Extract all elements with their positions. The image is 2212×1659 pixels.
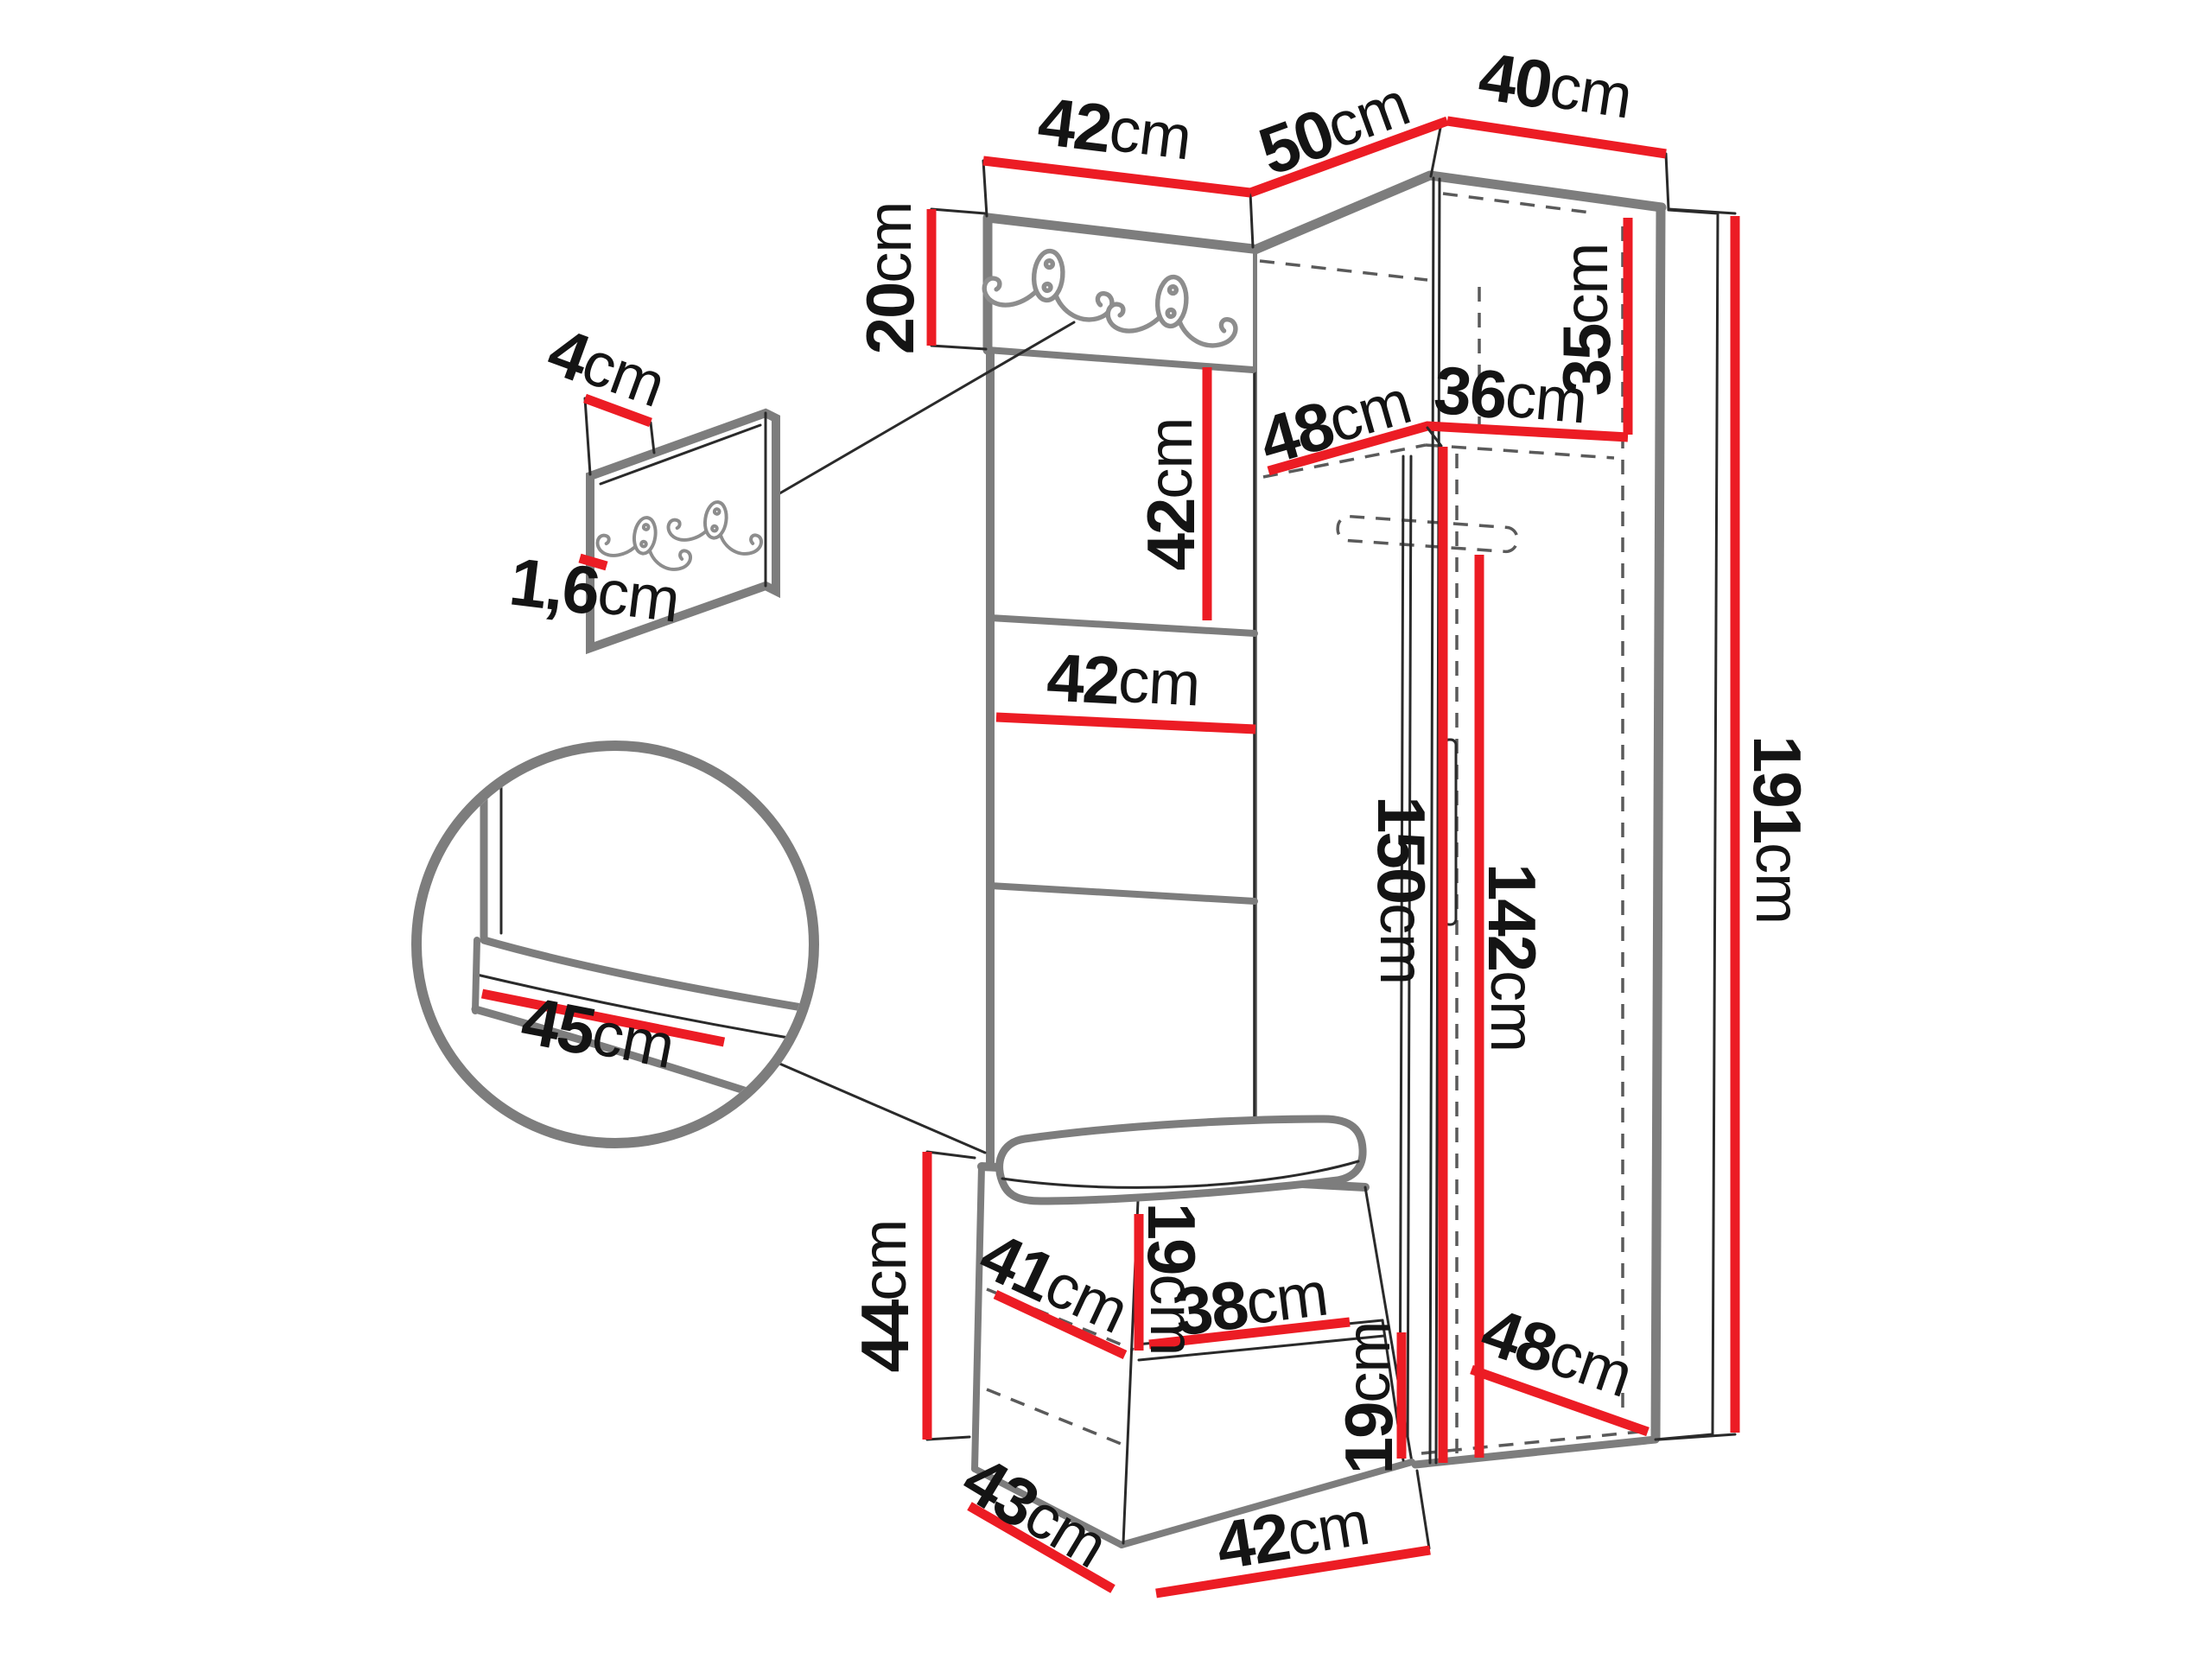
- dim-label-corner-left-depth: 50cm: [1249, 66, 1419, 189]
- dim-line-wardrobe-top-width: [1447, 121, 1666, 154]
- detail-leader-line: [778, 1063, 985, 1153]
- dim-label-bench-lower-compartment-height: 19cm: [1331, 1322, 1407, 1475]
- dim-label-total-height: 191cm: [1739, 735, 1815, 924]
- dim-label-hook-board-height: 20cm: [852, 202, 928, 355]
- dim-label-door-height: 142cm: [1474, 863, 1550, 1052]
- dim-label-bench-height: 44cm: [847, 1220, 923, 1373]
- wardrobe-front-right-edge: [1656, 210, 1661, 1438]
- dim-label-wardrobe-top-width: 40cm: [1474, 37, 1637, 135]
- dim-label-open-section-height: 150cm: [1363, 796, 1440, 984]
- diagram-canvas: 42cm 50cm 40cm 20cm 4cm 1,6cm 42cm 48cm …: [0, 0, 2212, 1659]
- dim-line-top-panel-width: [983, 161, 1250, 193]
- bench-corner-detail-circle: [416, 733, 985, 1153]
- upholstered-panel-stack: [990, 353, 1253, 1175]
- dim-label-top-panel-width: 42cm: [1034, 83, 1195, 177]
- dim-label-top-compartment-height: 35cm: [1548, 244, 1624, 397]
- furniture-dimension-diagram: 42cm 50cm 40cm 20cm 4cm 1,6cm 42cm 48cm …: [0, 0, 2212, 1659]
- dim-label-upholstered-panel-height: 42cm: [1133, 418, 1209, 571]
- detail-cushion-left-edge: [475, 940, 477, 1011]
- dim-label-upholstered-panel-width: 42cm: [1045, 639, 1201, 722]
